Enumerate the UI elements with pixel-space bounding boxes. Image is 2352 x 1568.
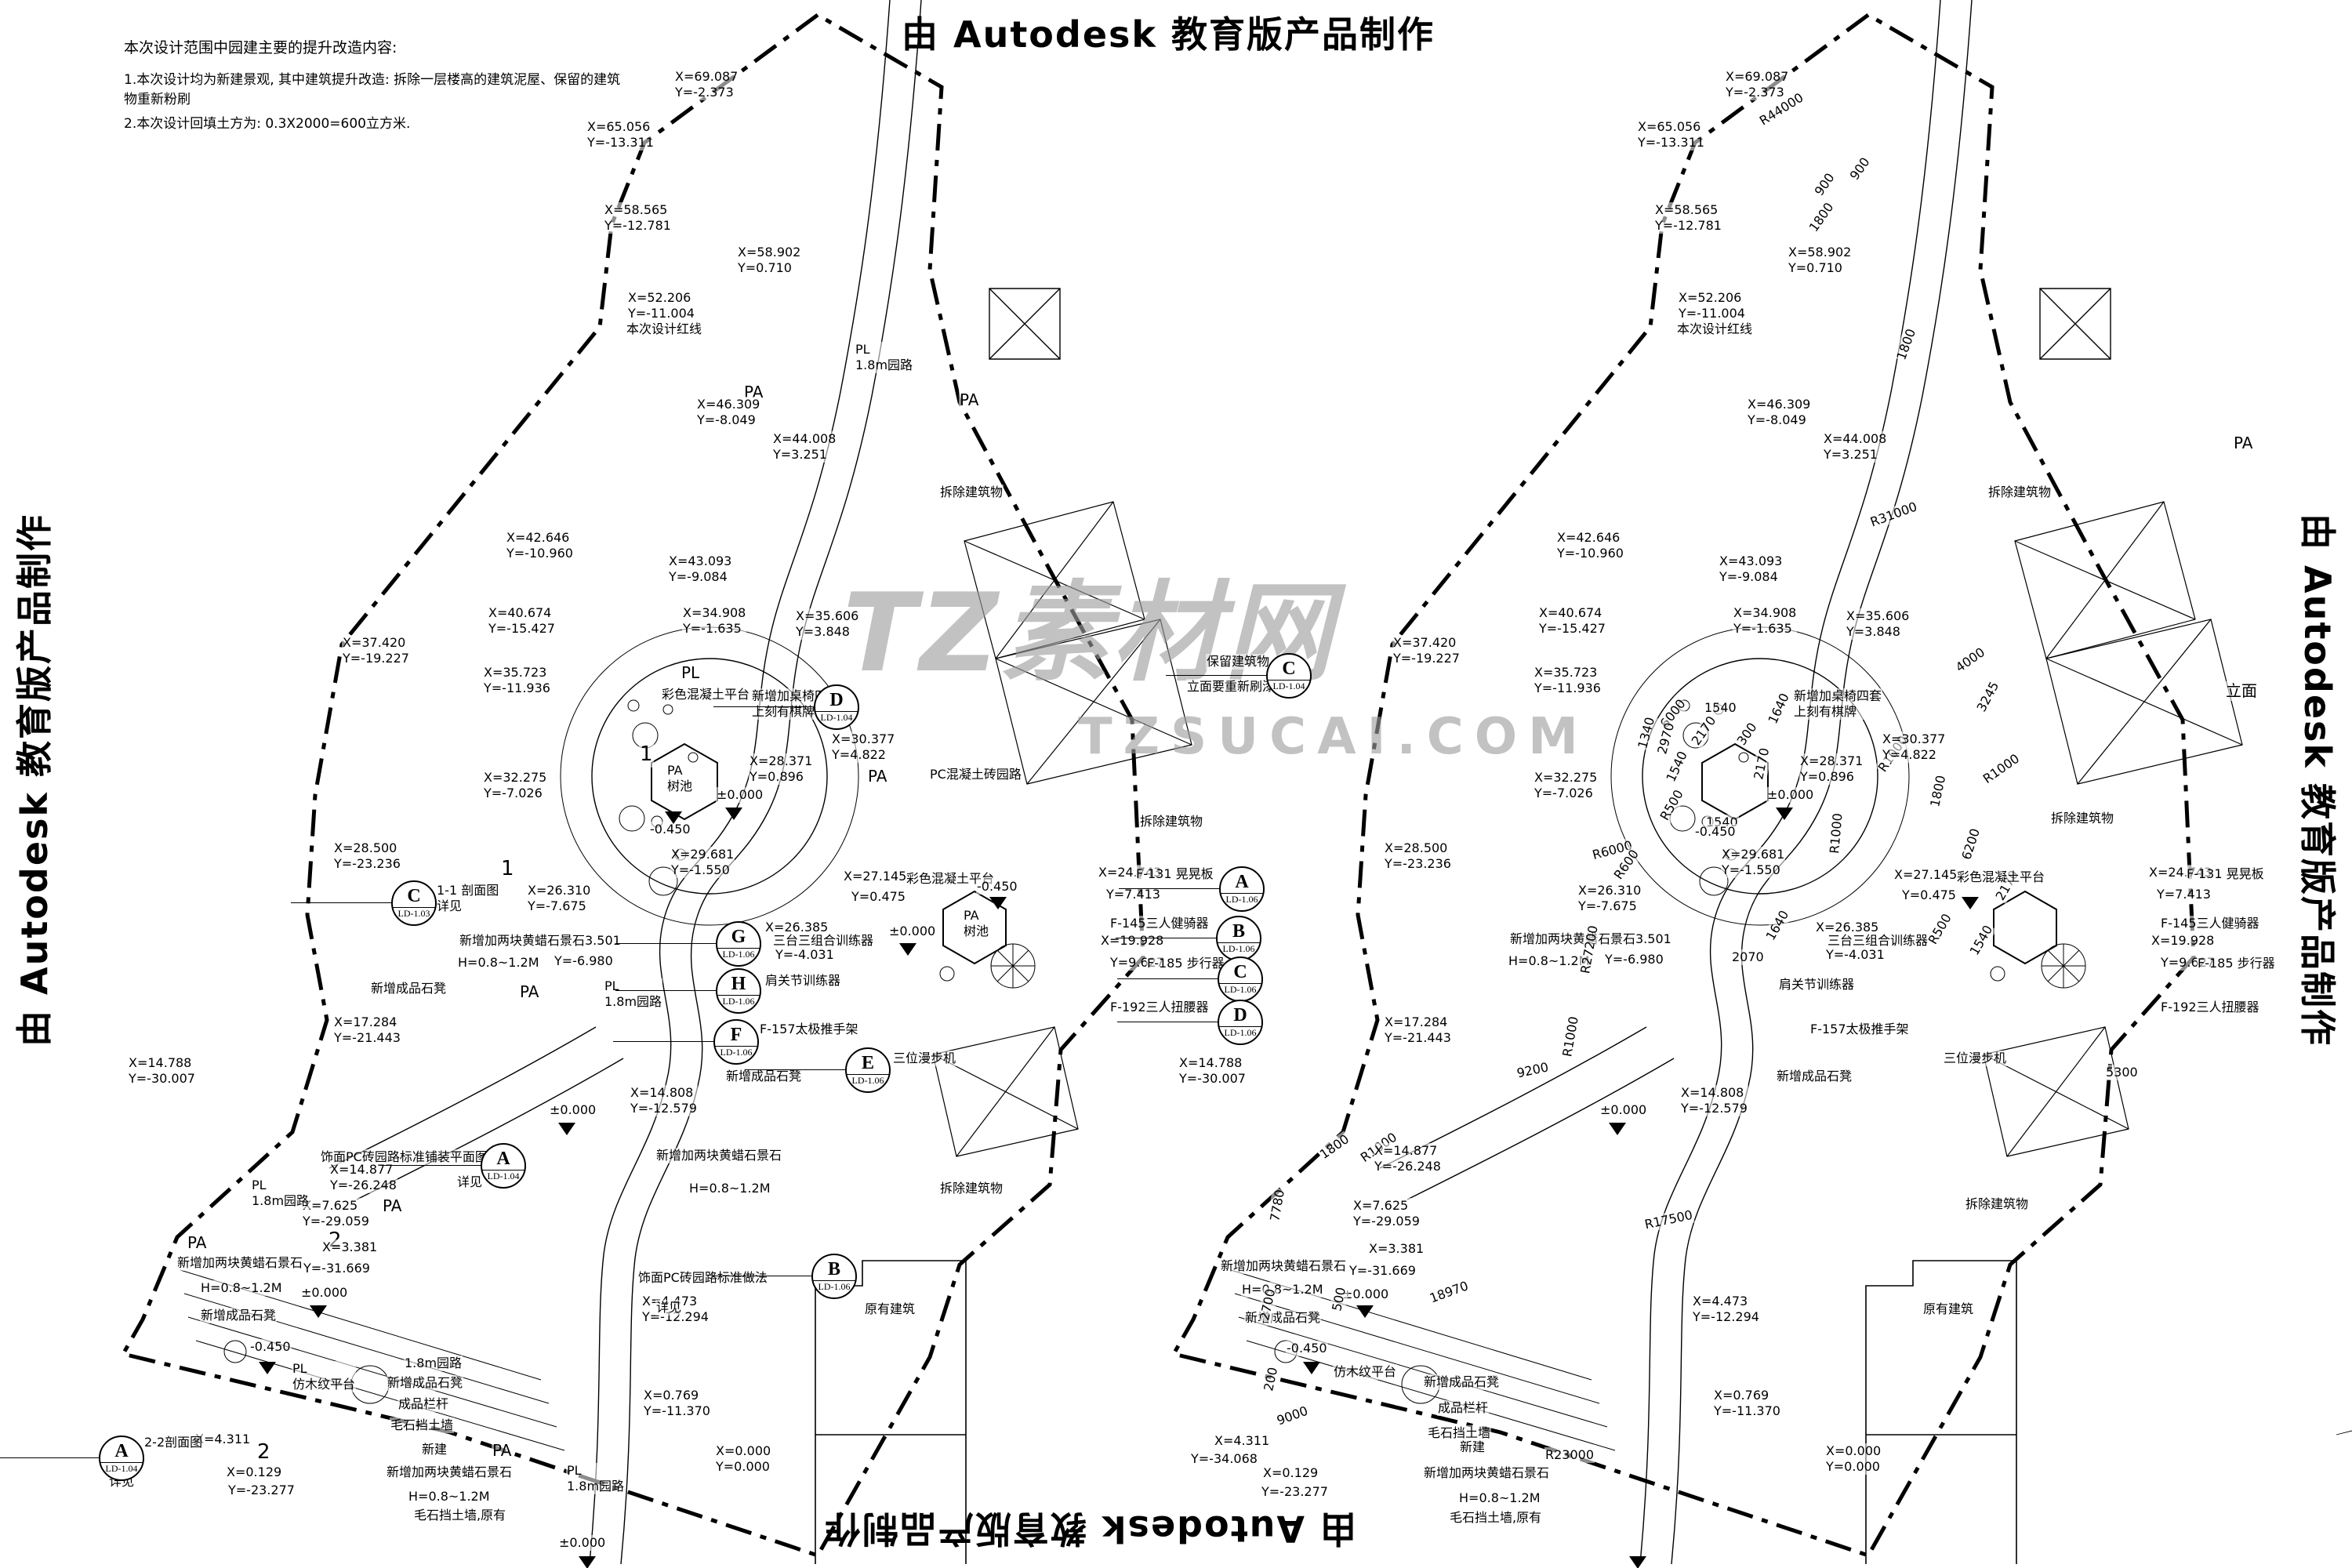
plan-label: X=32.275 Y=-7.026 [1534, 770, 1598, 801]
detail-marker-letter: A [482, 1149, 524, 1171]
detail-marker-code: LD-1.06 [723, 996, 755, 1007]
plan-label: X=44.008 Y=3.251 [772, 431, 837, 463]
plan-label: 新建 [421, 1442, 448, 1457]
plan-label: 新增加两块黄蜡石景石 [655, 1148, 782, 1163]
detail-marker-code: LD-1.03 [398, 908, 430, 919]
plan-label: X=19.928 [2151, 933, 2215, 949]
plan-label: 新增成品石凳 [1776, 1069, 1853, 1084]
plan-label: X=32.275 Y=-7.026 [483, 770, 547, 801]
plan-label: 新增成品石凳 [1423, 1374, 1500, 1390]
plan-label: X=17.284 Y=-21.443 [333, 1014, 401, 1046]
plan-label: 1-1 剖面图 详见 [436, 883, 499, 914]
plan-label: 新增成品石凳 [370, 981, 447, 996]
plan-label: 彩色混凝土平台 [661, 687, 750, 702]
plan-label: PL 仿木纹平台 [292, 1361, 356, 1392]
plan-label: 成品栏杆 [1437, 1400, 1489, 1416]
plan-label: X=58.565 Y=-12.781 [1654, 202, 1722, 234]
plan-label: X=28.500 Y=-23.236 [333, 840, 401, 872]
plan-label: X=46.309 Y=-8.049 [696, 397, 760, 428]
plan-label: F-157太极推手架 [759, 1022, 859, 1037]
plan-label: F-185 步行器 [2197, 956, 2276, 971]
plan-label: PA [2233, 434, 2253, 453]
plan-label: Y=0.475 [851, 889, 906, 905]
detail-marker: CLD-1.03 [391, 880, 437, 926]
plan-label: 拆除建筑物 [1987, 485, 2052, 500]
bottom-credit: 由 Autodesk 教育版产品制作 [917, 1505, 1356, 1557]
plan-label: H=0.8~1.2M [408, 1489, 491, 1504]
plan-label: X=27.145 [1893, 867, 1958, 883]
plan-label: X=0.000 Y=0.000 [1825, 1443, 1882, 1475]
plan-label: X=7.625 Y=-29.059 [302, 1198, 370, 1229]
plan-label: R23000 [1544, 1447, 1595, 1463]
plan-linework [0, 0, 2352, 1568]
notes-line-2: 2.本次设计回填土方为: 0.3X2000=600立方米. [124, 112, 626, 132]
plan-label: 立面要重新刷漆 [1186, 679, 1276, 695]
plan-label: Y=-6.980 [1604, 952, 1664, 967]
plan-label: X=14.877 Y=-26.248 [329, 1162, 397, 1193]
plan-label: X=29.681 Y=-1.550 [670, 847, 735, 878]
detail-marker-code: LD-1.06 [852, 1075, 884, 1086]
detail-marker: GLD-1.06 [716, 921, 761, 967]
plan-label: 新增加两块黄蜡石景石 [386, 1465, 513, 1480]
detail-marker: FLD-1.06 [713, 1019, 759, 1065]
plan-label: 新增成品石凳 [1244, 1310, 1321, 1326]
plan-label: ±0.000 [1599, 1102, 1647, 1118]
level-marker-icon [259, 1362, 276, 1374]
plan-label: F-131 晃晃板 [2186, 866, 2265, 882]
plan-label: X=19.928 [1100, 933, 1164, 949]
plan-label: X=52.206 Y=-11.004 [627, 290, 695, 321]
level-marker-icon [1303, 1362, 1320, 1374]
plan-label: PA [492, 1441, 512, 1461]
plan-label: F-157太极推手架 [1809, 1022, 1910, 1037]
plan-label: H=0.8~1.2M [457, 955, 540, 971]
cad-drawing-canvas: 由 Autodesk 教育版产品制作 由 Autodesk 教育版产品制作 由 … [0, 0, 2352, 1568]
plan-label: PA [867, 767, 887, 786]
plan-label: F-145三人健骑器 [1109, 916, 1210, 931]
detail-marker-letter: H [717, 975, 760, 996]
left-credit: 由 Autodesk 教育版产品制作 [6, 510, 58, 1051]
plan-label: X=69.087 Y=-2.373 [674, 69, 739, 100]
plan-label: 毛石挡土墙,原有 [413, 1508, 506, 1523]
level-marker-icon [1356, 1305, 1374, 1318]
detail-marker: DLD-1.04 [814, 684, 859, 730]
plan-label: 2-2剖面图 [143, 1435, 203, 1450]
detail-marker-letter: D [815, 691, 858, 712]
plan-label: X=0.129 [1262, 1465, 1319, 1481]
plan-label: X=14.788 Y=-30.007 [1178, 1055, 1247, 1087]
plan-label: H=0.8~1.2M [200, 1280, 283, 1296]
level-marker-icon [725, 808, 742, 820]
plan-label: ±0.000 [549, 1102, 597, 1118]
plan-label: 肩关节训练器 [1778, 977, 1855, 993]
plan-label: 新增成品石凳 [387, 1375, 463, 1391]
level-marker-icon [310, 1305, 327, 1318]
plan-label: X=35.606 Y=3.848 [1846, 608, 1910, 640]
plan-label: X=17.284 Y=-21.443 [1384, 1014, 1452, 1046]
plan-label: ±0.000 [888, 924, 936, 939]
right-plan-copy [1174, 0, 2352, 1564]
plan-label: ±0.000 [558, 1535, 606, 1551]
plan-label: 详见 [456, 1174, 483, 1190]
level-marker-icon [579, 1556, 596, 1568]
plan-label: X=43.093 Y=-9.084 [668, 554, 732, 585]
plan-label: X=58.902 Y=0.710 [737, 245, 801, 276]
detail-marker-letter: D [1219, 1006, 1261, 1027]
plan-label: Y=-31.669 [303, 1261, 371, 1276]
right-credit: 由 Autodesk 教育版产品制作 [2294, 510, 2346, 1051]
plan-label: -0.450 [249, 1339, 292, 1355]
plan-label: PA [519, 982, 539, 1002]
level-marker-icon [989, 897, 1007, 909]
plan-label: X=28.371 Y=0.896 [1799, 753, 1864, 785]
detail-marker-code: LD-1.06 [1226, 894, 1258, 905]
detail-marker-code: LD-1.06 [723, 949, 755, 960]
plan-label: F-131 晃晃板 [1135, 866, 1214, 882]
plan-label: PL 1.8m园路 [566, 1463, 625, 1494]
plan-label: X=27.145 [843, 869, 907, 884]
detail-marker-letter: A [100, 1442, 143, 1463]
design-notes: 本次设计范围中园建主要的提升改造内容: 1.本次设计均为新建景观, 其中建筑提升… [124, 36, 626, 136]
plan-label: 成品栏杆 [397, 1396, 449, 1412]
plan-label: PA 树池 [666, 763, 693, 794]
detail-marker: CLD-1.04 [1266, 653, 1312, 699]
plan-label: 5300 [2105, 1065, 2139, 1080]
plan-label: PA [959, 390, 979, 410]
plan-label: X=28.500 Y=-23.236 [1384, 840, 1452, 872]
plan-label: X=0.000 Y=0.000 [715, 1443, 771, 1475]
plan-label: 拆除建筑物 [1965, 1196, 2029, 1212]
plan-label: 拆除建筑物 [1139, 814, 1203, 829]
plan-label: X=14.808 Y=-12.579 [1680, 1085, 1748, 1116]
detail-marker: ELD-1.06 [845, 1047, 891, 1093]
plan-label: X=42.646 Y=-10.960 [506, 530, 574, 561]
plan-label: X=26.310 Y=-7.675 [527, 883, 591, 914]
level-marker-icon [558, 1123, 575, 1135]
plan-label: Y=-31.669 [1348, 1263, 1417, 1279]
plan-label: 新增加两块黄蜡石景石 [176, 1255, 303, 1271]
detail-marker-code: LD-1.04 [488, 1171, 520, 1181]
plan-label: 拆除建筑物 [2050, 811, 2114, 826]
plan-label: X=7.625 Y=-29.059 [1352, 1198, 1421, 1229]
detail-marker-letter: B [1218, 922, 1260, 943]
plan-label: -0.450 [649, 822, 691, 837]
plan-label: PL 1.8m园路 [251, 1178, 310, 1209]
plan-label: Y=-23.277 [227, 1483, 296, 1498]
detail-marker-letter: G [717, 927, 760, 949]
detail-marker-code: LD-1.06 [1223, 943, 1255, 954]
plan-label: X=3.381 [321, 1240, 378, 1255]
detail-marker: ALD-1.04 [99, 1436, 144, 1481]
plan-label: 原有建筑 [1922, 1301, 1974, 1317]
plan-label: 立面 [2225, 681, 2258, 701]
detail-marker-code: LD-1.06 [818, 1281, 851, 1292]
detail-marker-code: LD-1.04 [1273, 681, 1305, 691]
plan-label: 新增成品石凳 [200, 1308, 277, 1323]
plan-label: 毛石挡土墙,原有 [1449, 1510, 1542, 1526]
detail-marker-code: LD-1.06 [720, 1047, 753, 1058]
plan-label: H=0.8~1.2M [688, 1181, 771, 1196]
plan-label: 新增成品石凳 [725, 1069, 802, 1084]
plan-label: ±0.000 [1766, 787, 1814, 803]
plan-label: F-192三人扭腰器 [2160, 1000, 2260, 1015]
plan-label: 详见 [655, 1300, 682, 1316]
detail-marker-code: LD-1.04 [106, 1463, 138, 1474]
plan-label: X=37.420 Y=-19.227 [1392, 635, 1461, 666]
plan-label: Y=-23.277 [1261, 1484, 1329, 1500]
detail-marker: BLD-1.06 [1216, 916, 1261, 961]
plan-label: F-185 步行器 [1146, 956, 1225, 971]
plan-label: X=58.902 Y=0.710 [1788, 245, 1852, 276]
plan-label: H=0.8~1.2M [1458, 1490, 1541, 1506]
plan-label: X=37.420 Y=-19.227 [342, 635, 410, 666]
plan-label: X=65.056 Y=-13.311 [1637, 119, 1705, 151]
plan-label: X=30.377 Y=4.822 [831, 731, 895, 763]
plan-label: 原有建筑 [864, 1301, 916, 1317]
plan-label: X=26.310 Y=-7.675 [1577, 883, 1642, 914]
plan-label: 2070 [1731, 949, 1765, 965]
top-credit: 由 Autodesk 教育版产品制作 [894, 6, 1443, 58]
detail-marker: HLD-1.06 [716, 968, 761, 1014]
plan-label: 新增加两块黄蜡石景石 [1423, 1465, 1550, 1481]
detail-marker-letter: C [1219, 963, 1261, 984]
level-marker-icon [1629, 1556, 1646, 1568]
plan-label: PA 树池 [963, 908, 989, 939]
plan-label: X=14.877 Y=-26.248 [1374, 1143, 1442, 1174]
plan-label: Y=7.413 [2156, 887, 2212, 902]
plan-label: -0.450 [1286, 1341, 1328, 1356]
plan-label: Y=-6.980 [554, 953, 614, 969]
plan-label: PL 1.8m园路 [604, 978, 662, 1010]
plan-label: 新增加桌椅四套 上刻有棋牌 [1793, 688, 1882, 720]
plan-label: X=28.371 Y=0.896 [749, 753, 813, 785]
plan-label: Y=-4.031 [775, 947, 835, 963]
plan-label: Y=0.475 [1901, 887, 1957, 903]
plan-label: X=35.723 Y=-11.936 [1534, 665, 1602, 696]
plan-label: X=4.473 Y=-12.294 [1692, 1294, 1760, 1325]
plan-label: 毛石挡土墙 [1427, 1425, 1491, 1441]
plan-label: 三位漫步机 [892, 1051, 956, 1066]
detail-marker-code: LD-1.06 [1225, 1027, 1257, 1038]
detail-marker-code: LD-1.04 [821, 712, 853, 723]
plan-label: -0.450 [976, 879, 1018, 895]
plan-label: X=69.087 Y=-2.373 [1725, 69, 1789, 100]
detail-marker-letter: C [393, 887, 435, 908]
plan-label: X=58.565 Y=-12.781 [604, 202, 672, 234]
plan-label: 1 [639, 742, 654, 768]
detail-marker-letter: B [813, 1260, 855, 1281]
detail-marker: DLD-1.06 [1218, 1000, 1263, 1045]
plan-label: 饰面PC砖园路标准做法 [637, 1270, 768, 1286]
plan-label: Y=-34.068 [1190, 1451, 1258, 1467]
plan-label: X=3.381 [1368, 1241, 1425, 1257]
detail-marker: ALD-1.06 [1219, 866, 1265, 912]
plan-label: X=29.681 Y=-1.550 [1721, 847, 1785, 878]
plan-label: PC混凝土砖园路 [929, 767, 1022, 782]
plan-label: PL 1.8m园路 [855, 342, 913, 373]
detail-marker-letter: C [1268, 659, 1310, 681]
plan-label: 2 [256, 1439, 271, 1465]
plan-label: X=0.769 Y=-11.370 [643, 1388, 711, 1419]
plan-label: 拆除建筑物 [939, 485, 1004, 500]
plan-label: X=46.309 Y=-8.049 [1747, 397, 1811, 428]
plan-label: X=14.788 Y=-30.007 [128, 1055, 196, 1087]
plan-label: X=0.129 [226, 1465, 282, 1480]
plan-label: X=0.769 Y=-11.370 [1713, 1388, 1781, 1419]
plan-label: X=35.723 Y=-11.936 [483, 665, 551, 696]
plan-label: F-192三人扭腰器 [1109, 1000, 1210, 1015]
level-marker-icon [1609, 1123, 1626, 1135]
plan-label: H=0.8~1.2M [1241, 1282, 1324, 1298]
plan-label: 三台三组合训练器 [772, 933, 874, 949]
plan-label: 彩色混凝土平台 [1956, 869, 2045, 885]
plan-label: X=14.808 Y=-12.579 [630, 1085, 698, 1116]
plan-label: X=42.646 Y=-10.960 [1556, 530, 1624, 561]
plan-label: 拆除建筑物 [939, 1181, 1004, 1196]
level-marker-icon [1962, 897, 1979, 909]
plan-label: X=34.908 Y=-1.635 [1733, 605, 1797, 637]
plan-label: 仿木纹平台 [1333, 1364, 1397, 1380]
plan-label: 三台三组合训练器 [1827, 933, 1929, 949]
detail-marker-letter: E [847, 1054, 889, 1075]
plan-label: -0.450 [1694, 824, 1737, 840]
plan-label: X=44.008 Y=3.251 [1823, 431, 1887, 463]
plan-label: 毛石挡土墙 [390, 1417, 454, 1433]
plan-label: X=34.908 Y=-1.635 [682, 605, 746, 637]
plan-label: X=52.206 Y=-11.004 [1678, 290, 1746, 321]
plan-label: 本次设计红线 [1676, 321, 1753, 337]
level-marker-icon [665, 811, 682, 824]
level-marker-icon [899, 943, 916, 956]
notes-title: 本次设计范围中园建主要的提升改造内容: [124, 36, 626, 57]
plan-label: PA [382, 1196, 402, 1216]
plan-label: X=40.674 Y=-15.427 [488, 605, 556, 637]
notes-line-1: 1.本次设计均为新建景观, 其中建筑提升改造: 拆除一层楼高的建筑泥屋、保留的建… [124, 68, 626, 107]
plan-label: X=30.377 Y=4.822 [1882, 731, 1946, 763]
plan-label: 三位漫步机 [1943, 1051, 2007, 1066]
plan-label: 1 [500, 856, 515, 882]
plan-label: X=40.674 Y=-15.427 [1538, 605, 1606, 637]
plan-label: X=35.606 Y=3.848 [795, 608, 859, 640]
level-marker-icon [1776, 808, 1793, 820]
detail-marker-code: LD-1.06 [1225, 984, 1257, 995]
plan-label: 保留建筑物 [1206, 654, 1270, 670]
plan-label: X=65.056 Y=-13.311 [586, 119, 655, 151]
plan-label: ±0.000 [300, 1285, 348, 1301]
detail-marker-letter: A [1221, 873, 1263, 894]
plan-label: PL [681, 663, 700, 683]
detail-marker: BLD-1.06 [811, 1254, 857, 1299]
plan-label: 新建 [1459, 1439, 1486, 1455]
detail-marker: ALD-1.04 [481, 1143, 526, 1189]
plan-label: Y=-4.031 [1825, 947, 1886, 963]
plan-label: ±0.000 [716, 787, 764, 803]
plan-label: 新增加两块黄蜡石景石3.501 [459, 933, 622, 949]
plan-label: F-145三人健骑器 [2160, 916, 2260, 931]
detail-marker: CLD-1.06 [1218, 956, 1263, 1002]
plan-label: Y=7.413 [1105, 887, 1161, 902]
detail-marker-letter: F [715, 1025, 757, 1047]
plan-label: 1.8m园路 [404, 1356, 463, 1371]
plan-label: X=43.093 Y=-9.084 [1719, 554, 1783, 585]
plan-label: 肩关节训练器 [764, 973, 841, 989]
plan-label: PA [187, 1233, 207, 1253]
plan-label: X=4.311 [1214, 1433, 1270, 1449]
plan-label: 新增加两块黄蜡石景石 [1220, 1258, 1347, 1274]
plan-label: 本次设计红线 [626, 321, 702, 337]
